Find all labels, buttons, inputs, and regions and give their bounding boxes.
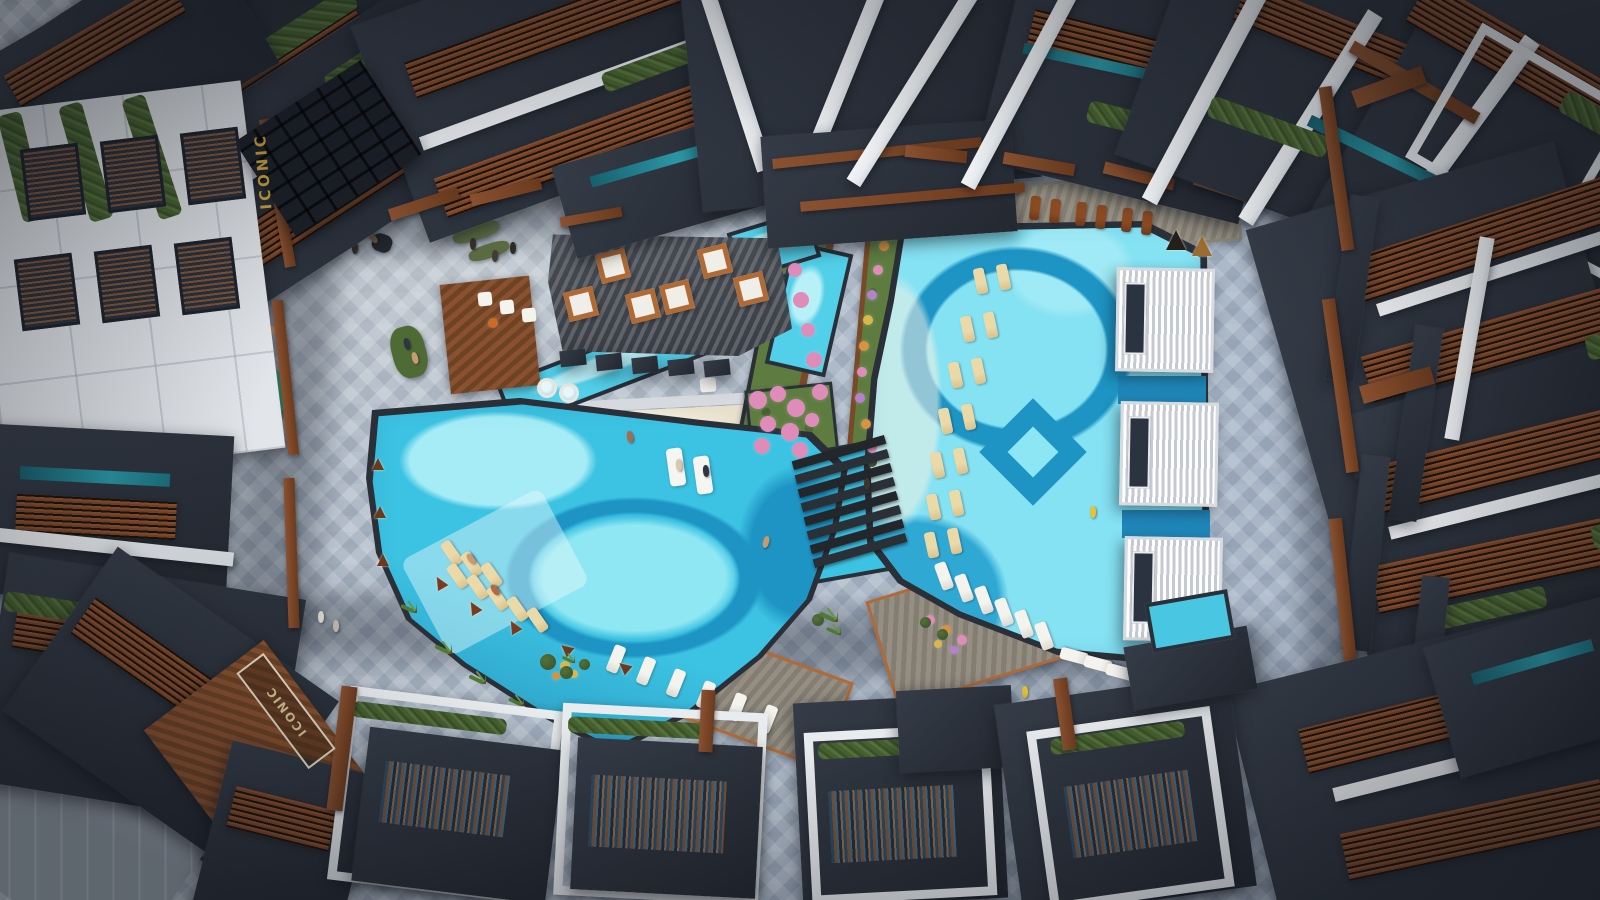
flower [754,438,770,454]
flower [801,323,815,337]
flower [857,367,867,377]
hot-tub [559,383,579,403]
roof-skylight-stripes [588,775,727,854]
person [470,238,476,250]
pool-cabana [1115,267,1215,373]
seat-cushion [499,299,514,314]
seat-cushion [477,291,492,306]
flower [806,352,822,368]
cabana-window [1127,416,1150,488]
deck-triangle-decor [377,554,389,566]
person [333,620,339,632]
building-block [559,349,587,368]
person [492,250,498,262]
flower [788,263,802,277]
person [864,478,870,490]
window [100,135,166,214]
roof-skylight-stripes [828,785,957,863]
bush [937,629,948,640]
pool-water-strip [1118,376,1206,404]
bush [560,666,573,679]
flower [781,423,799,441]
building-block [595,353,623,372]
pool-diamond-inner [1008,427,1059,478]
building-block [667,358,695,377]
seat-cushion [488,318,498,328]
deck-triangle-decor [372,458,384,470]
window [174,237,240,316]
window [94,245,160,324]
flower [805,413,819,427]
flower [879,241,889,251]
flower [812,384,828,400]
palm-tree-icon [545,633,575,663]
flower [760,416,776,432]
building-block [631,356,659,375]
flower [770,386,786,402]
deck-triangle-decor [1166,230,1186,250]
window [14,253,80,332]
bush [920,617,931,628]
person [1090,506,1096,518]
palm-tree-icon [488,670,524,706]
palm-tree-icon [446,644,486,684]
window [180,127,246,206]
flower [787,399,805,417]
flower [950,646,958,654]
window [20,143,86,222]
cabana-window [1123,282,1146,354]
person [510,242,516,254]
seat-cushion [521,307,536,322]
flower [957,635,967,645]
flower [873,265,883,275]
hot-tub [537,378,557,398]
flower [861,419,871,429]
flower [855,393,865,403]
deck-triangle-decor [1192,236,1212,256]
palm-tree-icon [379,575,417,613]
building-block [703,359,731,378]
flower [749,391,767,409]
flower [859,341,869,351]
flower [934,640,942,648]
pool-water-strip [1122,510,1210,538]
pool-cabana [1119,401,1219,507]
flower [793,292,809,308]
person [1022,686,1028,698]
deck-triangle-decor [374,506,386,518]
palm-tree-icon [807,601,841,635]
flower [863,315,873,325]
aerial-courtyard-render: ICONIC ICONIC [0,0,1600,900]
flower [867,290,877,300]
bush [579,659,590,670]
white-daybed [700,377,717,392]
flower [792,442,808,458]
person [318,611,324,623]
